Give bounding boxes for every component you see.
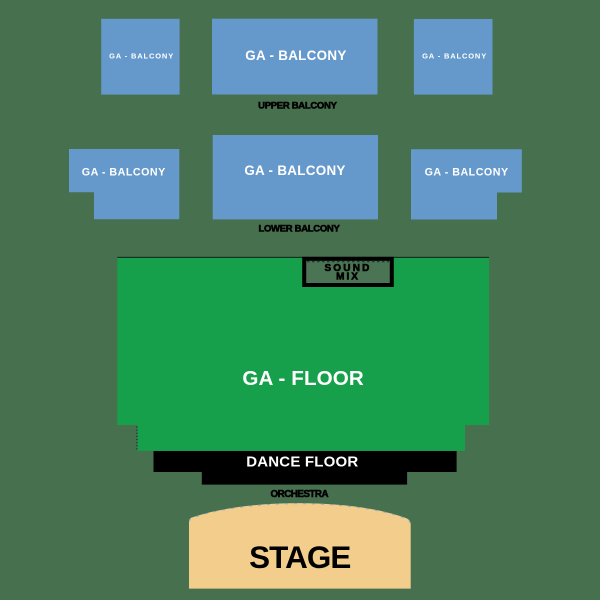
svg-text:MIX: MIX xyxy=(336,272,360,283)
svg-text:GA - BALCONY: GA - BALCONY xyxy=(82,166,166,178)
svg-text:UPPER BALCONY: UPPER BALCONY xyxy=(258,100,337,111)
svg-text:LOWER BALCONY: LOWER BALCONY xyxy=(258,224,340,235)
svg-text:GA - FLOOR: GA - FLOOR xyxy=(242,367,364,390)
svg-text:GA - BALCONY: GA - BALCONY xyxy=(109,51,174,60)
svg-text:GA - BALCONY: GA - BALCONY xyxy=(244,163,345,178)
svg-text:ORCHESTRA: ORCHESTRA xyxy=(271,489,329,500)
svg-text:GA - BALCONY: GA - BALCONY xyxy=(425,166,509,178)
svg-text:DANCE FLOOR: DANCE FLOOR xyxy=(246,454,358,471)
svg-text:GA - BALCONY: GA - BALCONY xyxy=(422,51,487,60)
svg-text:GA - BALCONY: GA - BALCONY xyxy=(245,48,346,63)
svg-text:STAGE: STAGE xyxy=(249,540,350,575)
